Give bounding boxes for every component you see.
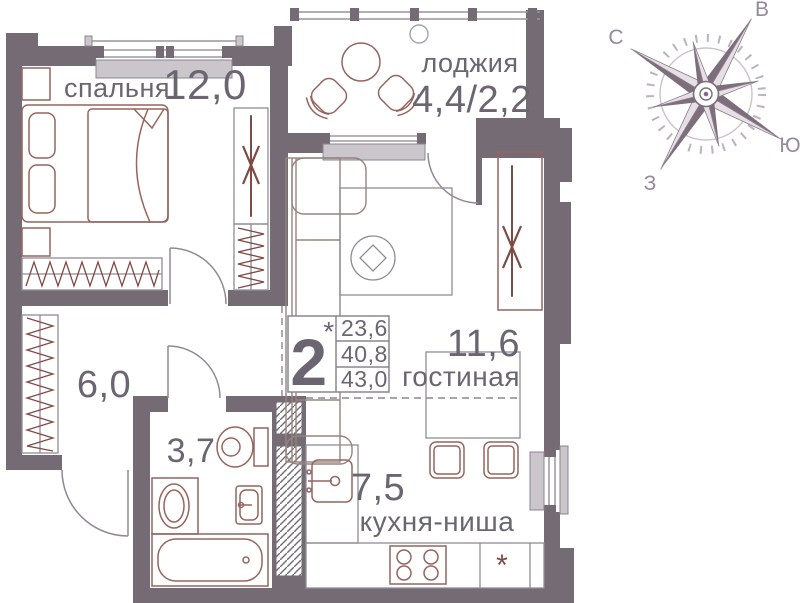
compass-west-label: З	[644, 172, 657, 195]
room-hall: 6,0	[22, 315, 131, 453]
loggia-table	[342, 43, 380, 81]
bedroom-area: 12,0	[163, 61, 247, 108]
bedroom-wardrobe-rail	[234, 108, 268, 224]
room-bedroom: спальня 12,0	[22, 61, 268, 290]
loggia-glazing	[290, 8, 540, 21]
wall-loggia-corner	[274, 26, 292, 66]
living-wardrobe	[498, 152, 542, 310]
tub-basin	[158, 539, 262, 581]
sofa-chaise	[292, 158, 366, 214]
compass-east-label: В	[755, 0, 769, 21]
glazing-post	[410, 8, 419, 21]
toilet-bowl-inner	[222, 438, 240, 456]
stove-burner	[397, 550, 411, 564]
fridge-mark: *	[496, 549, 508, 582]
door-arc	[62, 470, 128, 536]
kitchen-sink	[307, 460, 352, 502]
coffee-table	[351, 236, 395, 280]
area-without-loggia: 40,8	[341, 341, 388, 367]
info-box: 2 * 23,6 40,8 43,0	[288, 315, 389, 399]
loggia-label: лоджия	[422, 48, 519, 78]
shaft-hatch-top	[276, 402, 302, 434]
pillow	[29, 165, 55, 213]
washer-door-inner	[164, 490, 184, 522]
chair-seat	[375, 72, 417, 114]
chair-seat	[308, 75, 350, 117]
vent-shaft	[272, 396, 306, 592]
bathroom-area: 3,7	[167, 432, 216, 470]
stove-burner	[424, 566, 438, 580]
window-sill	[530, 452, 544, 510]
bedroom-wardrobe-side	[234, 224, 268, 290]
window-post	[321, 133, 330, 144]
window-post	[544, 448, 556, 457]
wall-bath-left	[133, 410, 150, 592]
rooms-count: 2	[290, 325, 327, 399]
wall-bottom-right-step	[560, 548, 574, 592]
room-living: 11,6 гостиная	[286, 152, 542, 478]
dining-chair-inner	[488, 446, 514, 474]
window-post	[156, 46, 164, 58]
window-post	[544, 505, 556, 514]
tub-outline	[152, 534, 268, 586]
nightstand	[22, 228, 50, 256]
stove-burner	[424, 550, 438, 564]
wall-bottom	[133, 588, 574, 603]
blanket	[88, 109, 168, 222]
compass-hub-dot	[704, 92, 709, 97]
window-outer-sill	[560, 446, 568, 514]
hall-wardrobe	[22, 315, 58, 453]
wall-pilaster-upper	[560, 128, 572, 182]
chair-back	[303, 97, 328, 122]
glazing-post	[528, 8, 537, 21]
floorplan-canvas: спальня 12,0 6,0	[0, 0, 800, 603]
area-total: 43,0	[341, 366, 388, 392]
loggia-door	[428, 150, 482, 205]
window-post	[222, 46, 232, 58]
kitchen-counter-bottom	[306, 543, 544, 588]
window-post	[166, 46, 174, 58]
toilet-tank	[254, 428, 268, 466]
wall-bath-top-right	[226, 396, 272, 412]
compass-south-label: Ю	[779, 134, 800, 157]
kitchen-label: кухня-ниша	[360, 506, 515, 537]
kitchen-window	[530, 446, 568, 514]
stove	[390, 546, 446, 584]
wall-hall-bottom	[6, 455, 62, 470]
blanket-corner	[134, 109, 164, 128]
sink-dot	[307, 470, 311, 474]
wall-left	[6, 46, 22, 470]
hall-area: 6,0	[77, 364, 131, 406]
door-arc	[428, 153, 478, 203]
blanket-fold	[136, 109, 150, 222]
loggia-area: 4,4/2,2	[412, 79, 532, 121]
wall-bath-top-left	[133, 396, 168, 412]
window-post	[417, 133, 426, 144]
wall-bedroom-hall-left	[22, 290, 168, 306]
sink-dot	[307, 488, 311, 492]
wall-living-top-left	[280, 133, 324, 153]
washing-machine	[152, 478, 198, 534]
facade-cap-right	[236, 36, 243, 46]
rug	[340, 188, 452, 295]
shaft-hatch-main	[276, 446, 302, 576]
area-living-total: 23,6	[341, 315, 388, 341]
tub-drain	[243, 557, 249, 563]
pillow	[29, 113, 55, 158]
coffee-table-decor	[360, 245, 386, 271]
bedroom-door	[170, 248, 226, 304]
glazing-post	[350, 8, 359, 21]
room-loggia: лоджия 4,4/2,2	[303, 25, 532, 122]
glazing-post	[468, 8, 477, 21]
bedroom-label: спальня	[64, 73, 170, 103]
wall-bedroom-right	[270, 46, 288, 306]
door-arc	[170, 248, 226, 304]
coffee-table-top	[351, 236, 395, 280]
toilet	[217, 427, 268, 467]
room-bathroom: 3,7	[152, 427, 268, 586]
footnote-mark: *	[323, 316, 334, 347]
living-area: 11,6	[447, 323, 520, 365]
wall-top-left-step	[6, 33, 38, 48]
wall-right-upper	[544, 158, 560, 450]
ceiling-lamp	[410, 25, 428, 43]
loggia-chair	[303, 75, 350, 122]
kitchen-area: 7,5	[351, 467, 405, 509]
bathroom-sink	[236, 486, 262, 524]
nightstand	[22, 68, 50, 100]
entry-door	[62, 470, 128, 536]
wall-right-lower	[544, 512, 560, 592]
living-loggia-window	[321, 133, 426, 160]
compass-north-label: С	[608, 26, 623, 49]
wall-bedroom-hall-right	[228, 290, 288, 306]
living-label: гостиная	[402, 361, 520, 392]
facade-cap-left	[85, 36, 92, 46]
stove-burner	[397, 566, 411, 580]
bedroom-wardrobe-bottom	[22, 258, 162, 290]
glazing-post	[290, 8, 299, 21]
bathtub	[152, 534, 268, 586]
door-arc	[168, 346, 220, 398]
door-leaf	[476, 150, 482, 205]
bathroom-door	[168, 346, 220, 398]
wall-pilaster-mid	[560, 202, 571, 344]
dining-chair-inner	[434, 446, 460, 474]
window-post	[94, 46, 104, 58]
